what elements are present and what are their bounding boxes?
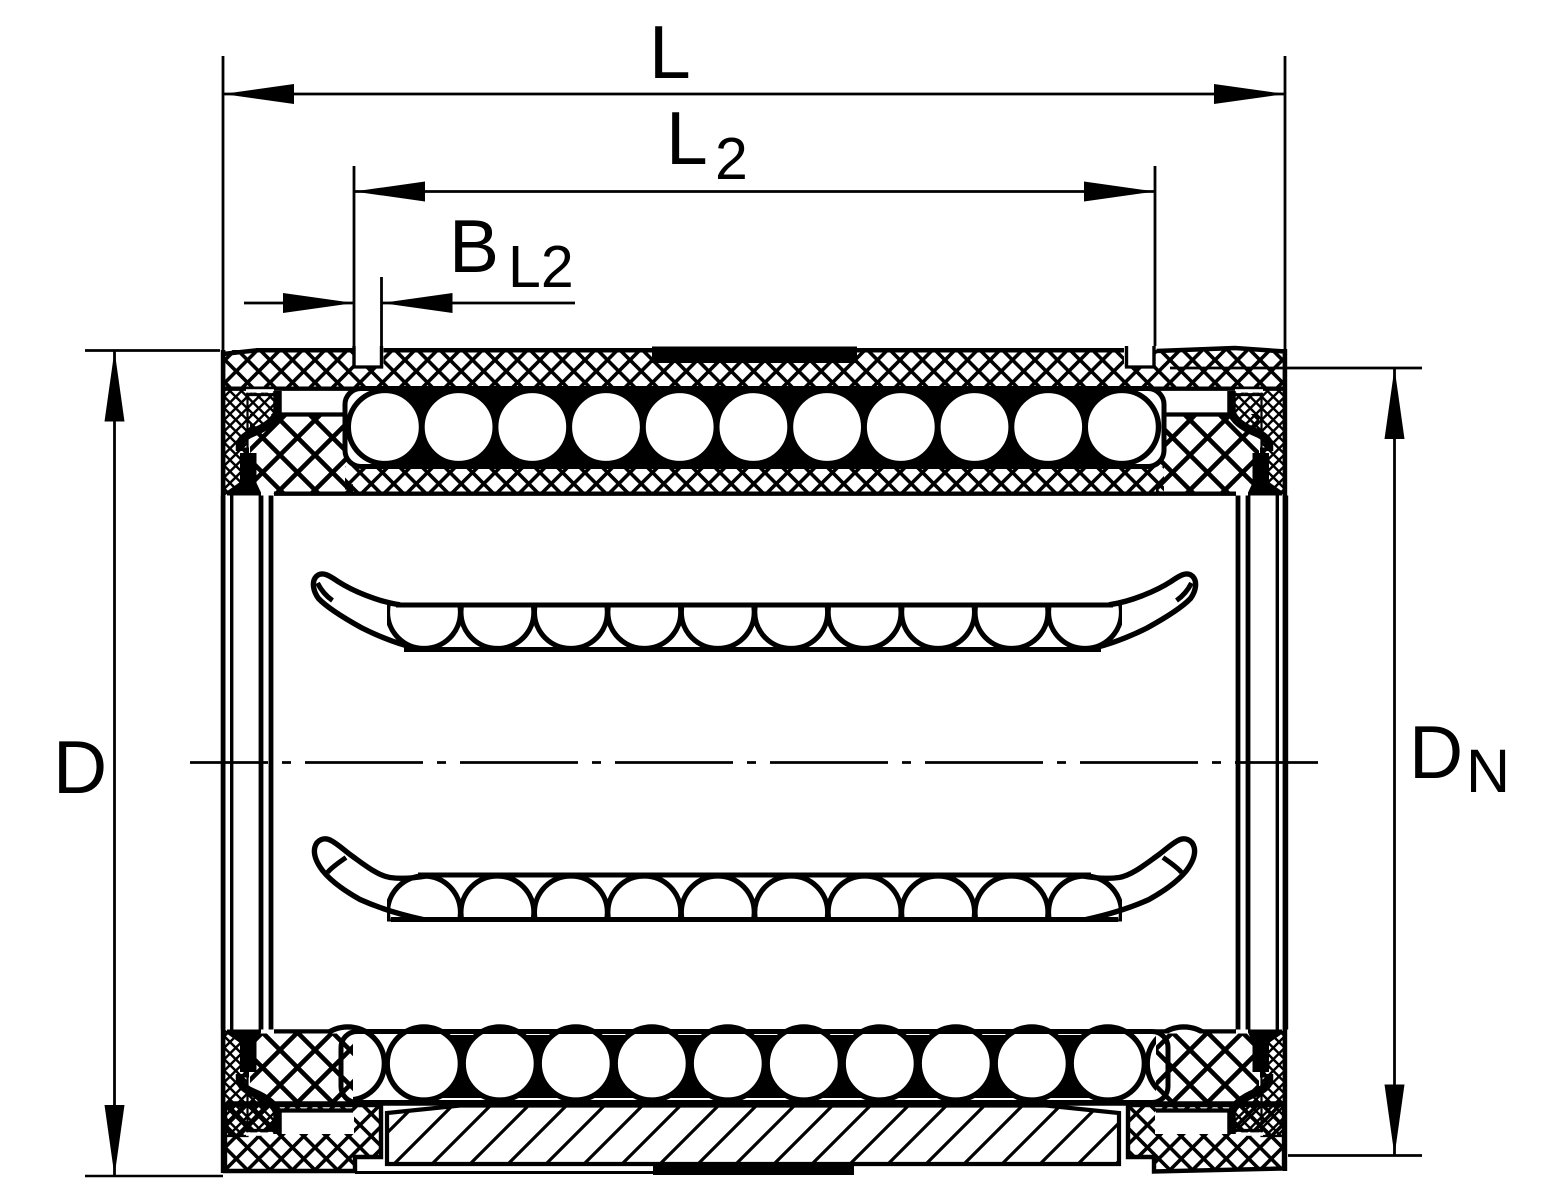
- svg-text:L: L: [649, 10, 691, 94]
- svg-text:B: B: [449, 204, 499, 288]
- svg-text:D: D: [1409, 710, 1463, 794]
- svg-text:N: N: [1466, 737, 1510, 805]
- svg-text:L2: L2: [508, 234, 574, 300]
- svg-text:2: 2: [715, 126, 748, 192]
- svg-text:L: L: [666, 96, 708, 180]
- svg-text:D: D: [53, 725, 107, 809]
